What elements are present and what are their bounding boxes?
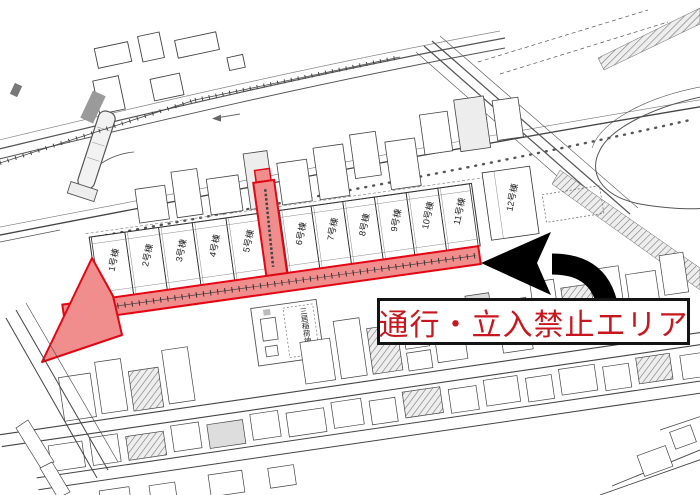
site-plan-map: 1号棟 2号棟 3号棟 4号棟 5号棟 6号棟 7号棟 8号棟 9号棟 10号棟… <box>0 0 700 495</box>
flow-arrow-icon <box>212 114 240 122</box>
southeast-corner <box>600 415 700 495</box>
map-drawing: 1号棟 2号棟 3号棟 4号棟 5号棟 6号棟 7号棟 8号棟 9号棟 10号棟… <box>0 0 700 495</box>
causeway <box>67 107 121 201</box>
prohibition-label: 通行・立入禁止エリア <box>377 298 690 345</box>
